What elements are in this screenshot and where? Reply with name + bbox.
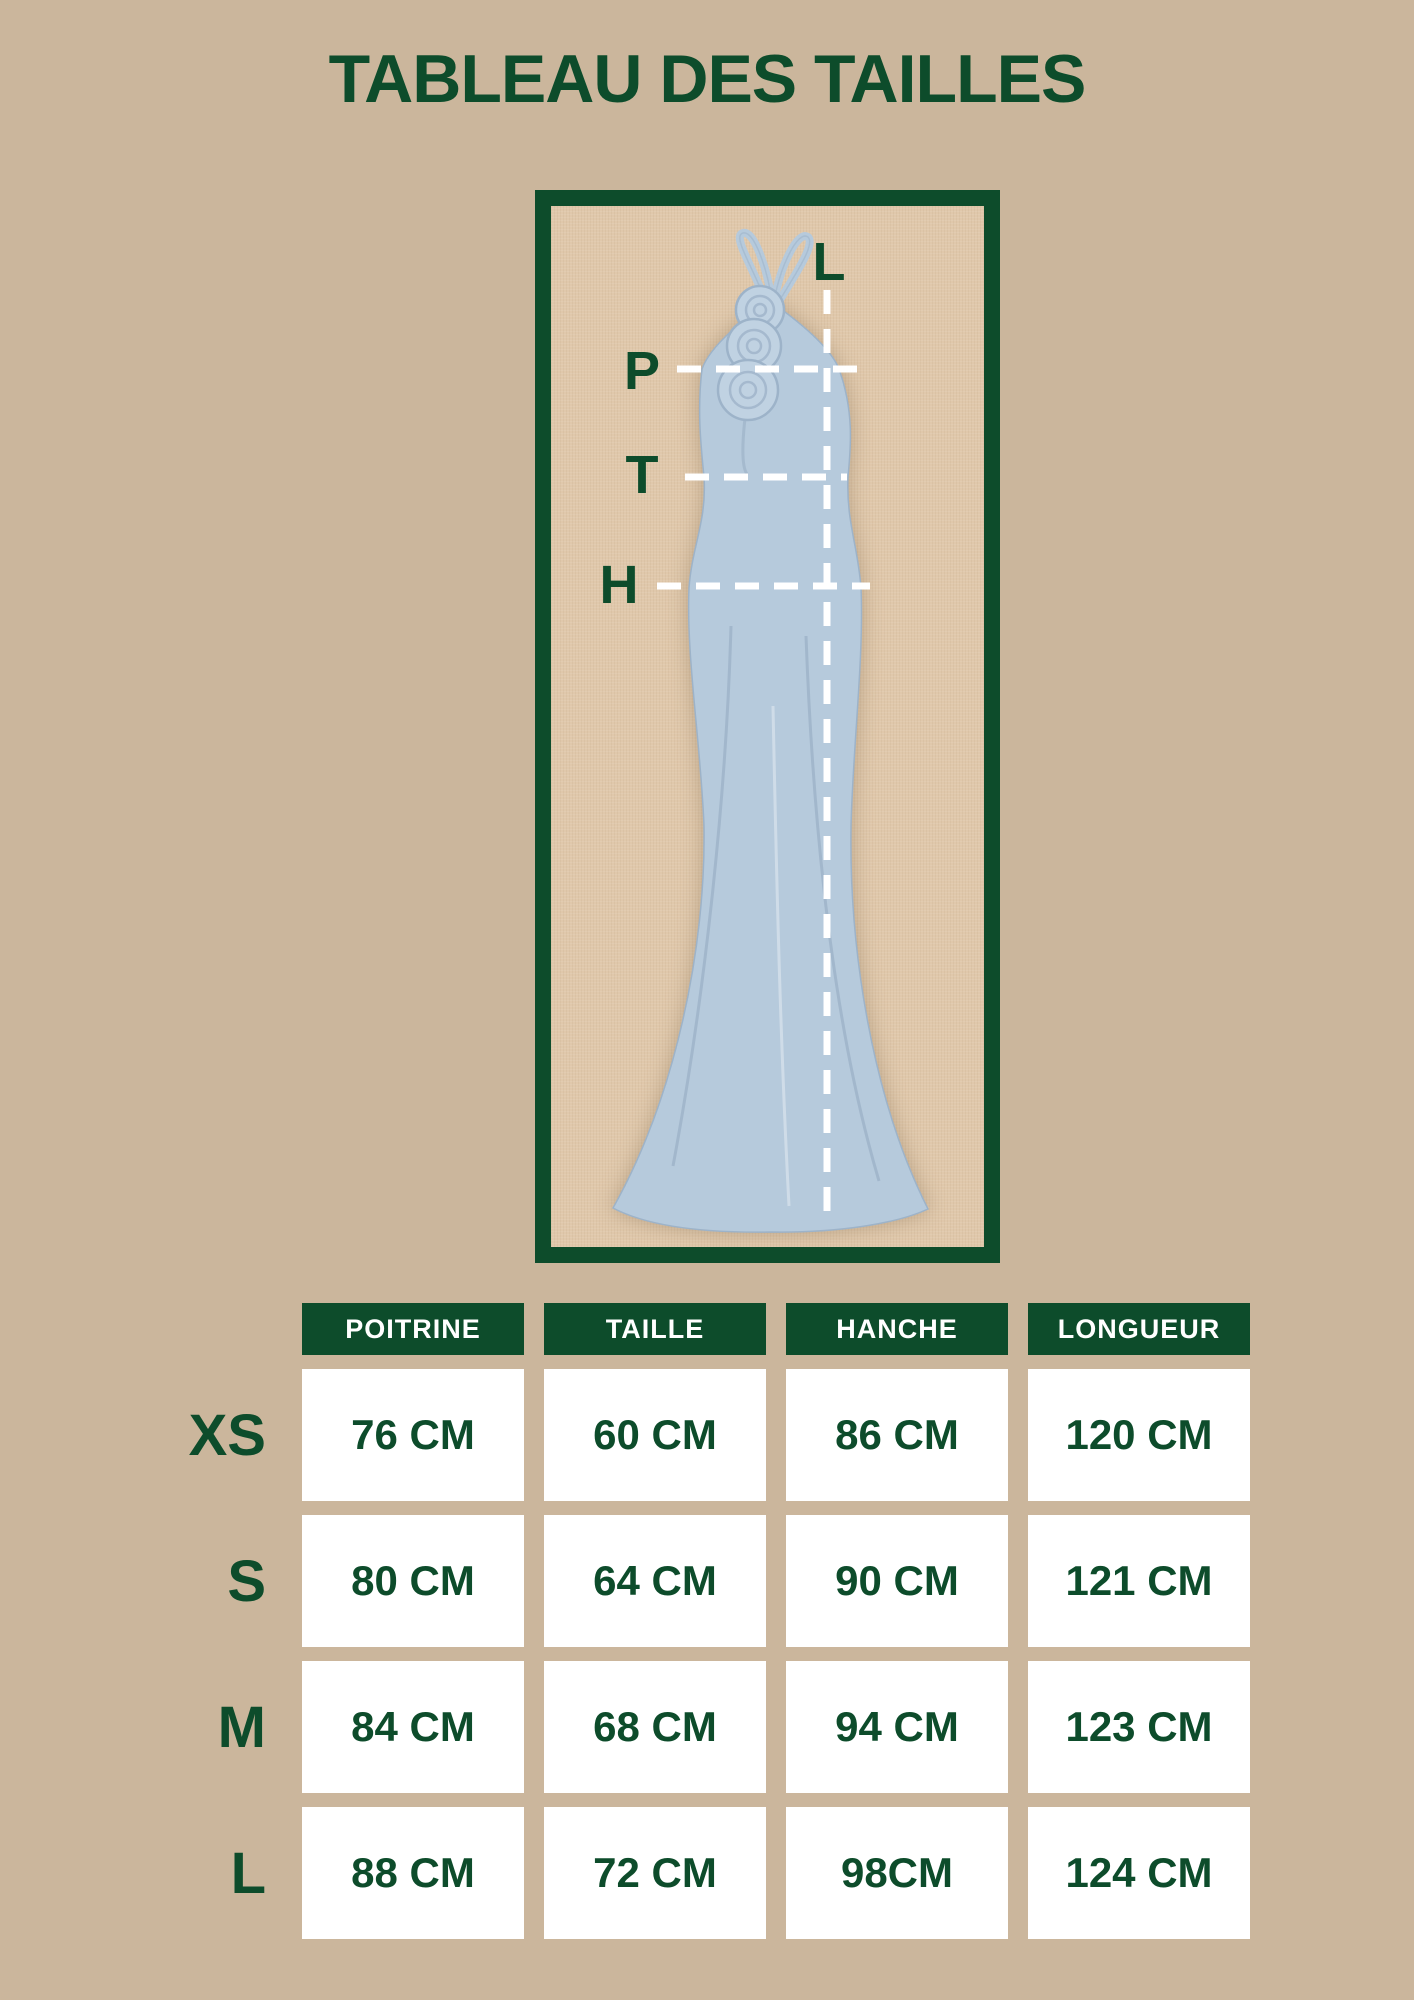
dress-illustration xyxy=(551,206,984,1247)
length-label: L xyxy=(813,235,846,289)
column-header-poitrine: POITRINE xyxy=(302,1303,524,1355)
cell-m-poitrine: 84 CM xyxy=(302,1661,524,1793)
cell-xs-taille: 60 CM xyxy=(544,1369,766,1501)
waist-label: T xyxy=(626,448,659,502)
dress-silhouette xyxy=(613,301,928,1232)
column-header-taille: TAILLE xyxy=(544,1303,766,1355)
cell-s-longueur: 121 CM xyxy=(1028,1515,1250,1647)
cell-xs-poitrine: 76 CM xyxy=(302,1369,524,1501)
hip-label: H xyxy=(600,558,639,612)
cell-l-poitrine: 88 CM xyxy=(302,1807,524,1939)
cell-m-taille: 68 CM xyxy=(544,1661,766,1793)
cell-s-poitrine: 80 CM xyxy=(302,1515,524,1647)
cell-m-hanche: 94 CM xyxy=(786,1661,1008,1793)
chest-label: P xyxy=(624,344,660,398)
cell-xs-longueur: 120 CM xyxy=(1028,1369,1250,1501)
cell-s-hanche: 90 CM xyxy=(786,1515,1008,1647)
row-label-xs: XS xyxy=(110,1369,282,1501)
cell-l-longueur: 124 CM xyxy=(1028,1807,1250,1939)
size-table: POITRINE TAILLE HANCHE LONGUEUR XS 76 CM… xyxy=(110,1303,1250,1939)
row-label-l: L xyxy=(110,1807,282,1939)
row-label-s: S xyxy=(110,1515,282,1647)
cell-m-longueur: 123 CM xyxy=(1028,1661,1250,1793)
dress-photo-frame: L P T H xyxy=(535,190,1000,1263)
cell-s-taille: 64 CM xyxy=(544,1515,766,1647)
column-header-hanche: HANCHE xyxy=(786,1303,1008,1355)
rosette-flowers xyxy=(718,286,784,420)
column-header-longueur: LONGUEUR xyxy=(1028,1303,1250,1355)
row-label-m: M xyxy=(110,1661,282,1793)
cell-xs-hanche: 86 CM xyxy=(786,1369,1008,1501)
page-title: TABLEAU DES TAILLES xyxy=(0,40,1414,118)
dress-photo-panel: L P T H xyxy=(551,206,984,1247)
size-chart-page: TABLEAU DES TAILLES xyxy=(0,0,1414,2000)
cell-l-taille: 72 CM xyxy=(544,1807,766,1939)
table-corner-spacer xyxy=(110,1303,282,1355)
cell-l-hanche: 98CM xyxy=(786,1807,1008,1939)
